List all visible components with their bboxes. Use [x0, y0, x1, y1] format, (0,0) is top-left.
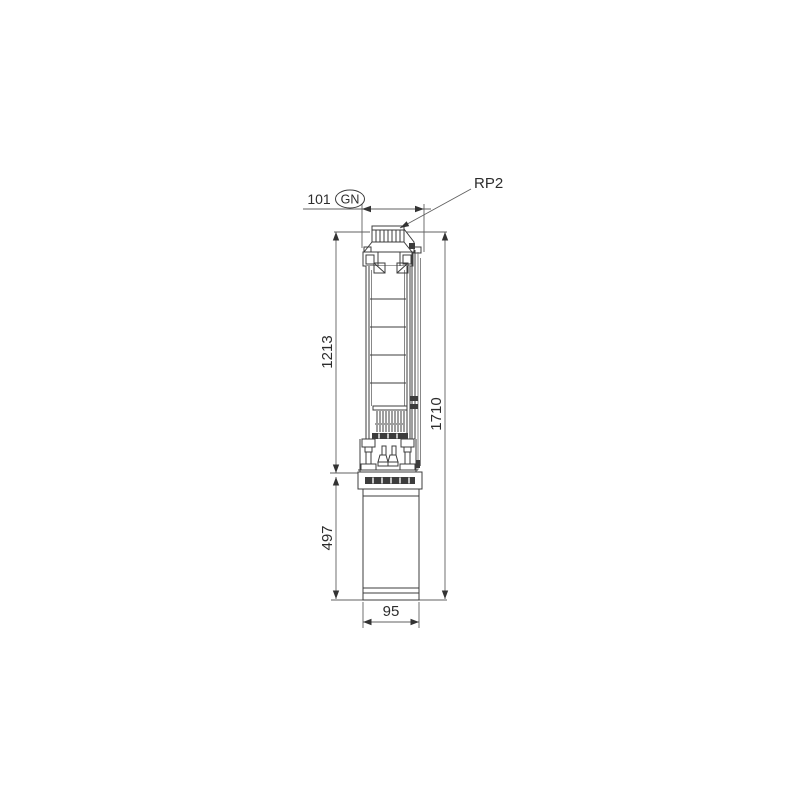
- leader-arrowhead: [400, 221, 409, 228]
- pump-outline: [358, 225, 422, 600]
- coupling: [358, 439, 418, 472]
- motor-body: [363, 489, 419, 600]
- dim-label-motor-width: 95: [383, 603, 400, 620]
- dimension-motor-width: 95: [363, 603, 419, 625]
- gn-label: GN: [341, 193, 360, 207]
- dimension-overall-length: 1710: [428, 232, 448, 599]
- dim-label-overall-length: 1710: [428, 397, 445, 430]
- arrowhead-down: [333, 591, 339, 600]
- arrowhead-down: [333, 465, 339, 474]
- arrowhead-left: [363, 619, 372, 625]
- dim-label-pump-length: 1213: [319, 335, 336, 368]
- dim-label-motor-length: 497: [319, 525, 336, 550]
- rp2-label: RP2: [474, 175, 503, 192]
- arrowhead-right: [415, 206, 424, 212]
- arrowhead-up: [442, 232, 448, 241]
- dimension-top-width: 101 GN: [303, 190, 431, 212]
- dimension-motor-length: 497: [319, 477, 339, 599]
- dimension-pump-length: 1213: [319, 232, 339, 473]
- arrowhead-left: [362, 206, 371, 212]
- arrowhead-up: [333, 477, 339, 486]
- arrowhead-down: [442, 591, 448, 600]
- rp2-leader: RP2: [400, 175, 503, 228]
- motor-flange: [358, 472, 422, 489]
- pump-dimensional-drawing: 101 GN 1213 497 1710 95: [0, 0, 800, 800]
- dim-label-top-width: 101: [307, 191, 331, 207]
- pump-sleeve: [366, 263, 410, 440]
- arrowhead-up: [333, 232, 339, 241]
- arrowhead-right: [411, 619, 420, 625]
- technical-drawing-page: 101 GN 1213 497 1710 95: [0, 0, 800, 800]
